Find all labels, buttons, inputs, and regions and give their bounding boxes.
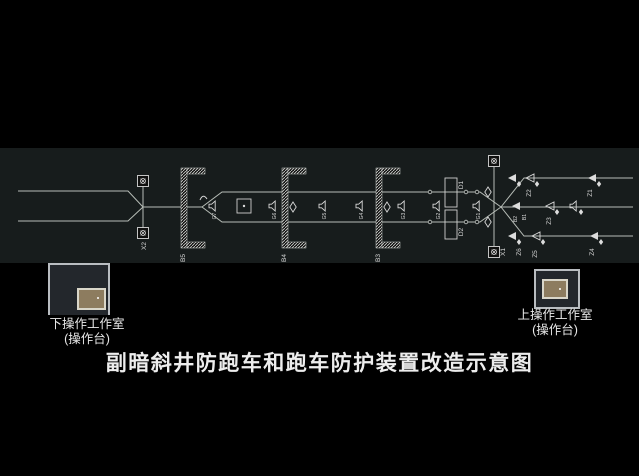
- arrester-z2: Z2: [526, 174, 539, 197]
- arrester-triangle-icon: [546, 202, 554, 210]
- arrester-triangle-icon: [588, 174, 596, 182]
- left-winch-upper-gear-icon: [138, 176, 149, 187]
- lower-room-name: 下操作工作室: [49, 317, 124, 332]
- gate-d2-label: D2: [458, 227, 465, 236]
- small-diamond-icon: [517, 239, 521, 245]
- upper-console: [542, 279, 568, 299]
- track-node-icon: [428, 220, 432, 224]
- sensor-g3: G3: [398, 201, 407, 219]
- hook-icon: [200, 196, 207, 200]
- small-diamond-icon: [555, 209, 559, 215]
- track-node-icon: [464, 220, 468, 224]
- barrier-b2-label: B2: [513, 216, 519, 222]
- arrester-triangle-icon: [508, 174, 516, 182]
- barrier-b4-label: B4: [281, 254, 288, 262]
- sensor-g1: G1: [473, 201, 482, 219]
- arrester-z6-label: Z6: [516, 248, 523, 256]
- gate-d2: D2: [445, 210, 465, 239]
- track-node-icon: [464, 190, 468, 194]
- sensor-g2: G2: [433, 201, 442, 219]
- small-diamond-icon: [599, 239, 603, 245]
- arrester-z2-label: Z2: [526, 189, 533, 197]
- left-lower-track: [18, 207, 143, 221]
- track-node-icon: [475, 190, 479, 194]
- mid-lower-track: [202, 207, 501, 222]
- upper-operator-room: [534, 269, 580, 309]
- small-diamond-icon: [579, 209, 583, 215]
- horn-icon: [473, 201, 479, 211]
- arrester-triangle-icon: [512, 202, 520, 210]
- barrier-b3-label: B3: [375, 254, 382, 262]
- right-winch-label: X1: [500, 248, 507, 256]
- upper-room-label: 上操作工作室 (操作台): [517, 308, 592, 337]
- small-diamond-icon: [597, 181, 601, 187]
- sensor-g6-label: G6: [272, 212, 278, 219]
- console-indicator-dot: [559, 288, 561, 290]
- barrier-b4: B4: [281, 168, 306, 262]
- barrier-b3: B3: [375, 168, 400, 262]
- diagram-title: 副暗斜井防跑车和跑车防护装置改造示意图: [0, 347, 639, 377]
- horn-icon: [269, 201, 275, 211]
- sensor-g5-label: G5: [322, 212, 328, 219]
- right-winch-lower-gear-icon: [489, 247, 500, 258]
- track-node-icon: [475, 220, 479, 224]
- sensor-g6: G6: [269, 201, 278, 219]
- sensor-g7-label: G7: [212, 212, 218, 219]
- track-node-icon: [428, 190, 432, 194]
- console-indicator-dot: [97, 297, 99, 299]
- arrester-z5-label: Z5: [532, 250, 539, 258]
- sensor-g4-label: G4: [359, 212, 365, 219]
- small-diamond-icon: [541, 239, 545, 245]
- screenshot-frame: X2 X1 B5 B4 B3: [0, 0, 639, 476]
- gate-d1-label: D1: [458, 180, 465, 189]
- lower-room-label: 下操作工作室 (操作台): [49, 317, 124, 346]
- arrester-triangle-icon: [508, 232, 516, 240]
- left-winch-lower-gear-icon: [138, 228, 149, 239]
- arrester-z6: Z6: [508, 232, 523, 256]
- branch-bottom-track: [501, 207, 633, 236]
- sensor-g7: G7: [209, 201, 218, 219]
- upper-room-sub: (操作台): [517, 323, 592, 338]
- branch-top-track: [501, 178, 633, 207]
- left-upper-track: [18, 191, 143, 207]
- track-diamond-icon: [384, 202, 390, 212]
- arrester-z3-label: Z3: [546, 217, 553, 225]
- arrester-triangle-icon: [590, 232, 598, 240]
- signal-box-icon: [237, 199, 251, 213]
- horn-icon: [209, 201, 215, 211]
- arrester-z1-label: Z1: [587, 189, 594, 197]
- mid-upper-track: [202, 192, 501, 207]
- horn-icon: [356, 201, 362, 211]
- arrester-z3: Z3: [546, 202, 559, 225]
- arrester-z1: Z1: [587, 174, 601, 197]
- barrier-b5-label: B5: [180, 254, 187, 262]
- right-winch-upper-gear-icon: [489, 156, 500, 167]
- arrester-z4-label: Z4: [589, 248, 596, 256]
- barrier-b1-label: B1: [522, 214, 528, 220]
- sensor-g2-label: G2: [436, 212, 442, 219]
- sensor-g1-label: G1: [476, 212, 482, 219]
- lower-room-sub: (操作台): [49, 332, 124, 347]
- track-schematic: X2 X1 B5 B4 B3: [0, 0, 639, 476]
- small-diamond-icon: [535, 181, 539, 187]
- sensor-g4: G4: [356, 201, 365, 219]
- upper-room-name: 上操作工作室: [517, 308, 592, 323]
- horn-icon: [433, 201, 439, 211]
- sensor-g3-label: G3: [401, 212, 407, 219]
- lower-operator-room: [48, 263, 110, 315]
- sensor-g5: G5: [319, 201, 328, 219]
- lower-console: [77, 288, 106, 310]
- horn-icon: [570, 201, 576, 211]
- left-winch-label: X2: [141, 242, 148, 250]
- horn-icon: [398, 201, 404, 211]
- barrier-b5: B5: [180, 168, 205, 262]
- track-diamond-icon: [290, 202, 296, 212]
- horn-icon: [319, 201, 325, 211]
